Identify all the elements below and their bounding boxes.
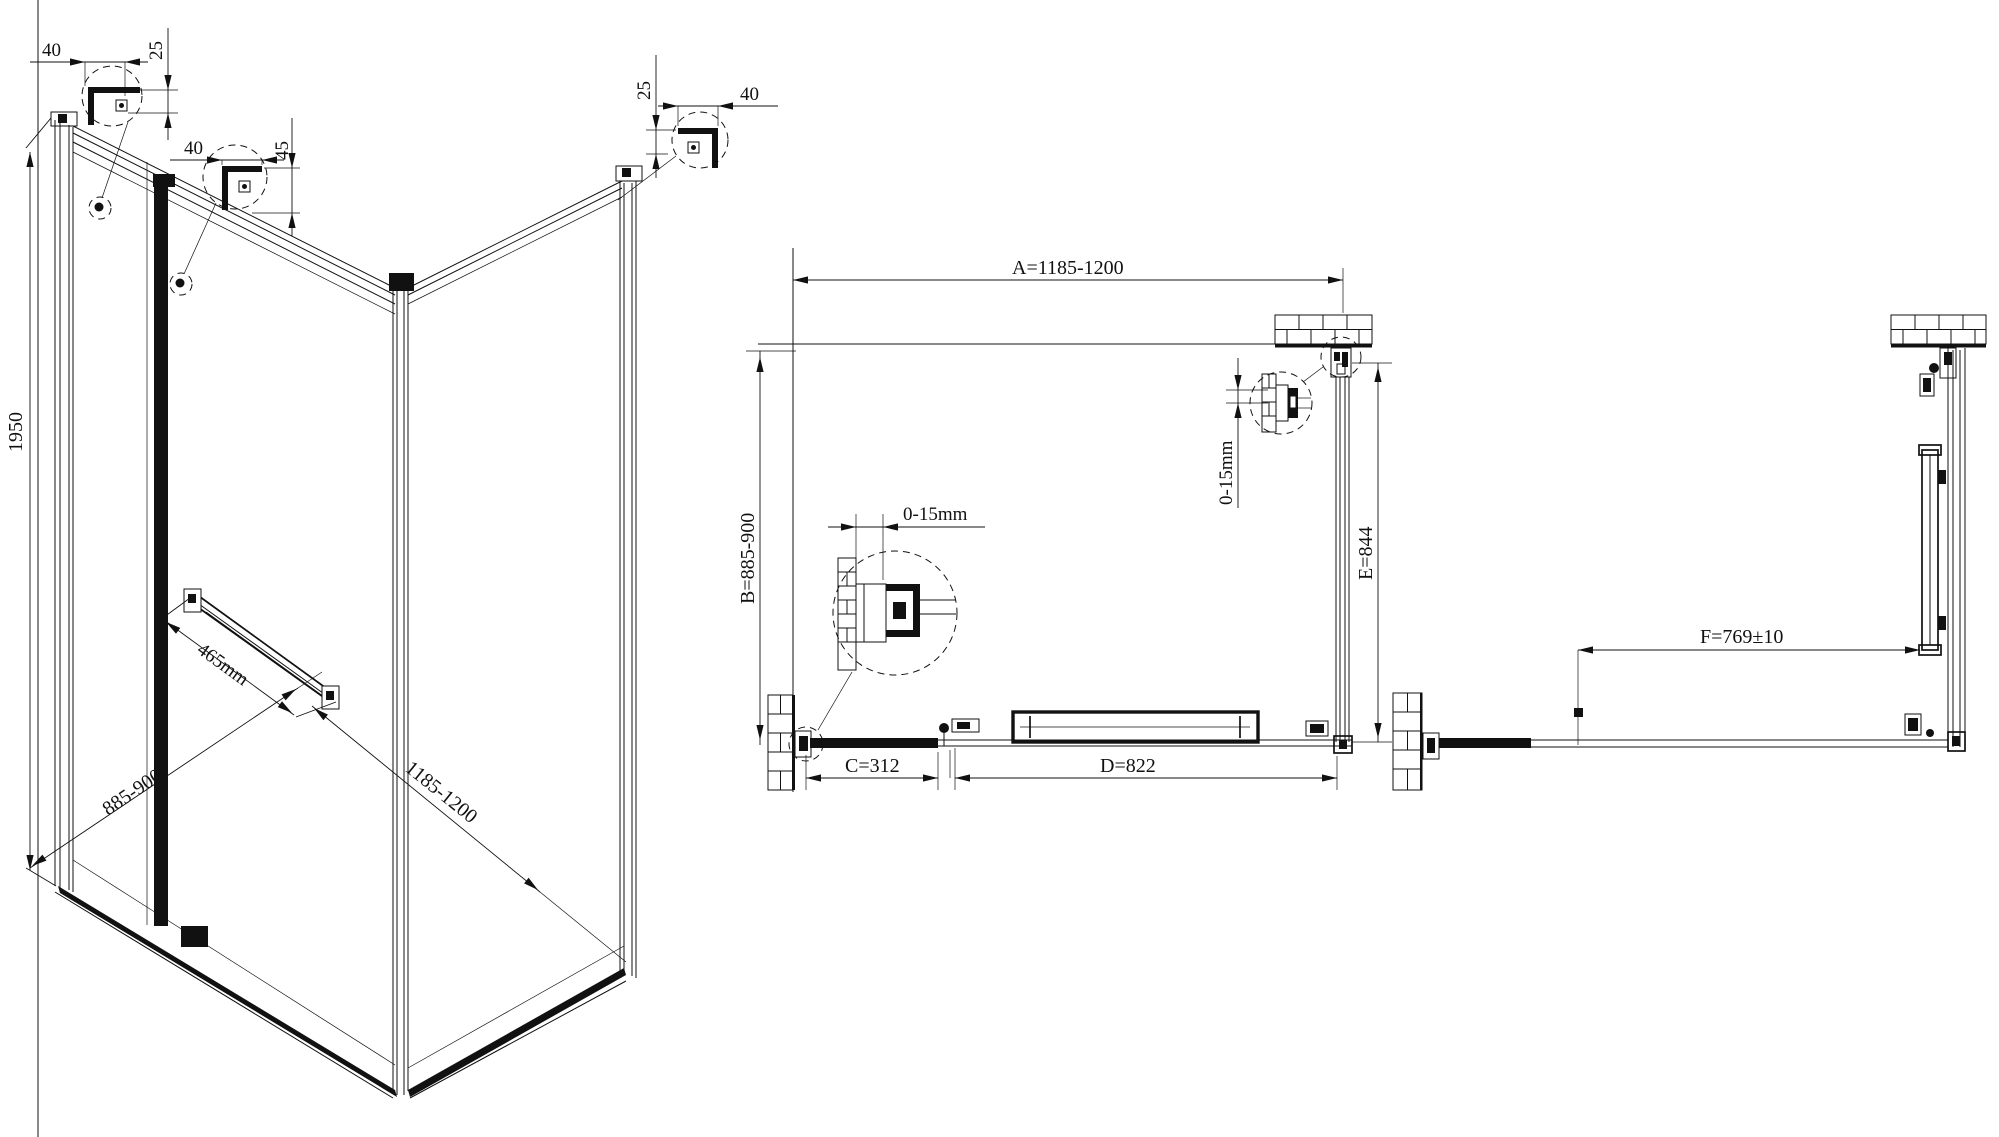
dim-width-label: 1185-1200 [401,757,482,828]
dim-towel-bar-label: 465mm [193,639,252,690]
plan-side-panel [1331,348,1351,744]
iso-door-header [73,126,395,314]
plan-door-assembly [795,712,1352,757]
side-bottom-track [1423,714,1965,759]
iso-dim-height: 1950 [5,118,56,886]
detail1-width-label: 40 [42,40,61,61]
plan-e-label: E=844 [1355,527,1377,581]
side-view: F=769±10 [1393,315,1986,790]
iso-side-panel [408,166,642,978]
iso-view: 1950 465mm 885-900 1185-1200 [5,112,642,1098]
plan-left-wall-bracket [768,695,795,790]
plan-a-label: A=1185-1200 [1012,257,1124,279]
plan-b-label: B=885-900 [737,513,759,604]
detail2-width-label: 40 [184,138,203,159]
side-top-wall-bracket [1891,315,1986,348]
iso-dim-width: 1185-1200 [312,705,626,962]
plan-adjust-top-label: 0-15mm [1216,440,1237,505]
plan-dim-b: B=885-900 [737,351,796,745]
side-bottom-wall-bracket [1393,693,1423,790]
iso-dim-towel-bar: 465mm [160,598,336,717]
iso-corner-post [389,273,414,1095]
plan-c-label: C=312 [845,755,900,777]
detail3-height-label: 25 [634,81,655,100]
plan-dim-c: C=312 [806,752,938,790]
detail3-width-label: 40 [740,84,759,105]
plan-top-wall-bracket [1275,315,1372,348]
side-panel-edge [1920,348,1965,747]
plan-dim-e: E=844 [1352,363,1392,742]
plan-dim-d: D=822 [950,748,1337,790]
side-dim-f: F=769±10 [1574,626,1920,745]
plan-adjust-left-label: 0-15mm [903,504,968,525]
side-f-label: F=769±10 [1700,626,1783,648]
detail2-height-label: 45 [272,141,293,160]
detail-circle-middle: 40 45 [170,118,300,274]
plan-detail-circle-profile [833,551,957,675]
drawing-sheet: 1950 465mm 885-900 1185-1200 [0,0,1999,1137]
dim-height-label: 1950 [5,412,27,452]
plan-d-label: D=822 [1100,755,1156,777]
iso-screw-callout-2 [170,273,192,295]
plan-dim-a: A=1185-1200 [793,257,1343,313]
iso-dim-depth: 885-900 [30,672,322,869]
detail1-height-label: 25 [146,41,167,60]
side-towel-bar [1919,445,1946,655]
iso-screw-callout-1 [89,197,111,219]
iso-bottom-rails [55,860,626,1098]
iso-left-wall-profile [51,112,77,892]
plan-view: 0-15mm A=1185-1200 B=885-900 E=844 [737,248,1392,792]
cad-drawing: 1950 465mm 885-900 1185-1200 [0,0,1999,1137]
